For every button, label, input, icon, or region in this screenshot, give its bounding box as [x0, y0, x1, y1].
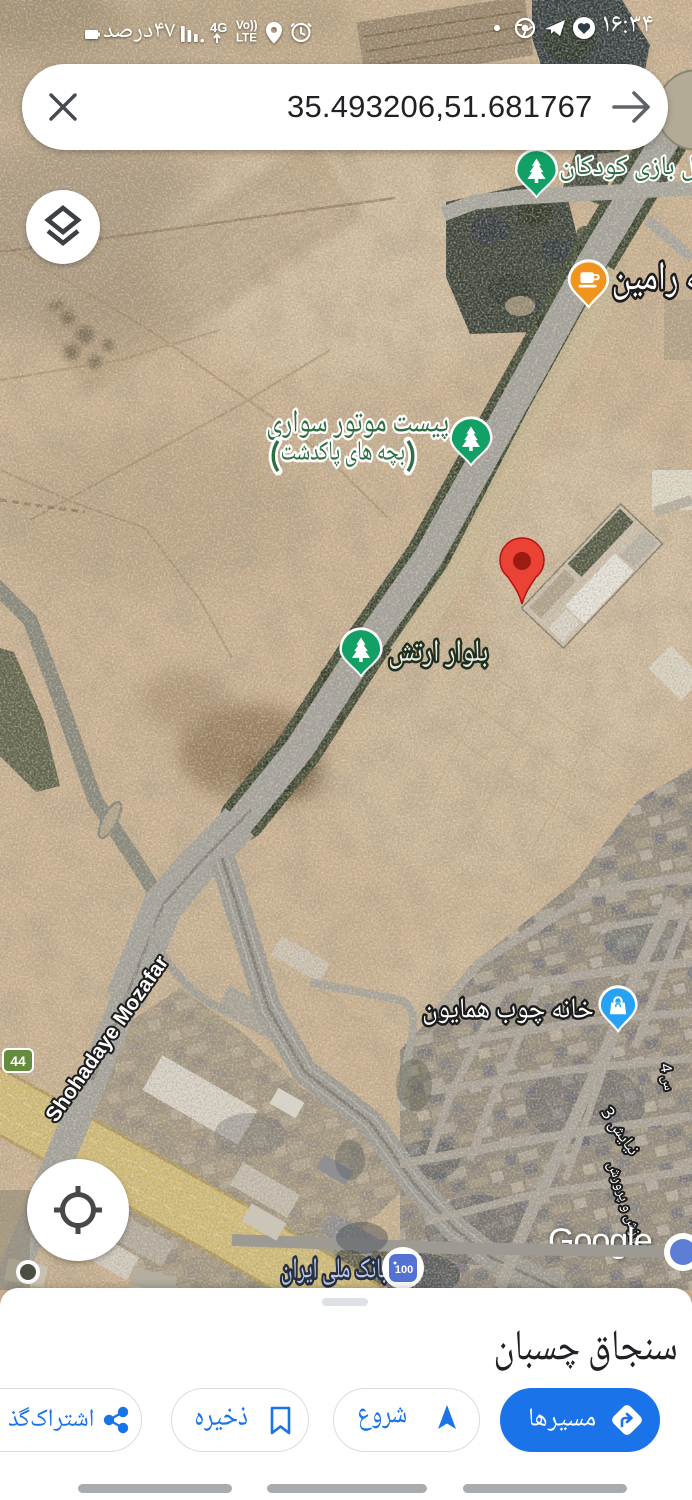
svg-text:Vo)): Vo)): [236, 20, 258, 32]
svg-text:4G: 4G: [210, 20, 227, 35]
svg-text:LTE: LTE: [236, 33, 257, 45]
svg-text:44: 44: [10, 1053, 26, 1069]
svg-text:100: 100: [395, 1264, 413, 1276]
